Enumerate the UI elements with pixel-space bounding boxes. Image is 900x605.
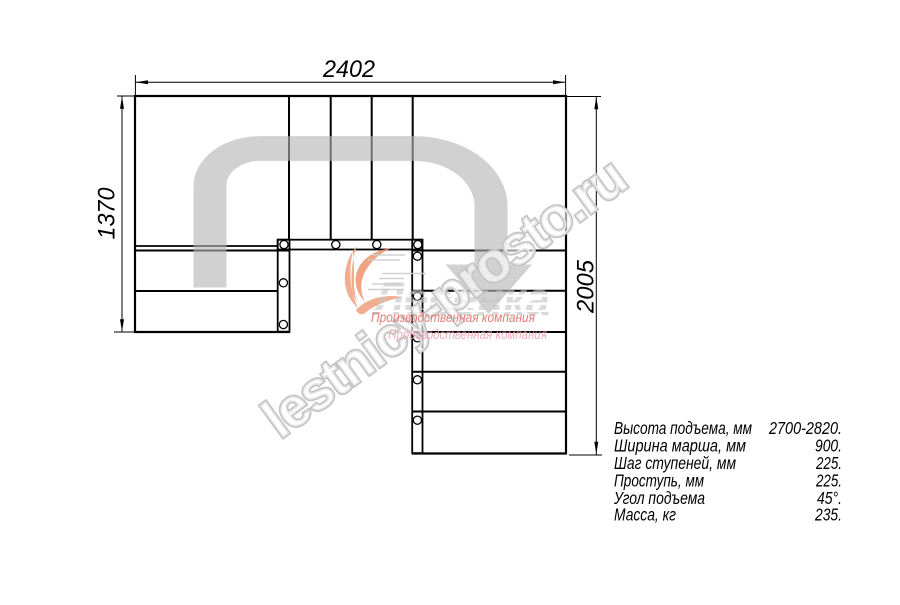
svg-text:Производственная компания: Производственная компания [388, 327, 547, 342]
svg-text:2005: 2005 [573, 259, 600, 314]
svg-text:1370: 1370 [94, 187, 121, 240]
svg-text:2402: 2402 [322, 56, 375, 83]
svg-text:235.: 235. [814, 505, 842, 525]
svg-text:Производственная компания: Производственная компания [371, 310, 535, 325]
svg-text:Масса, кг: Масса, кг [614, 505, 676, 525]
